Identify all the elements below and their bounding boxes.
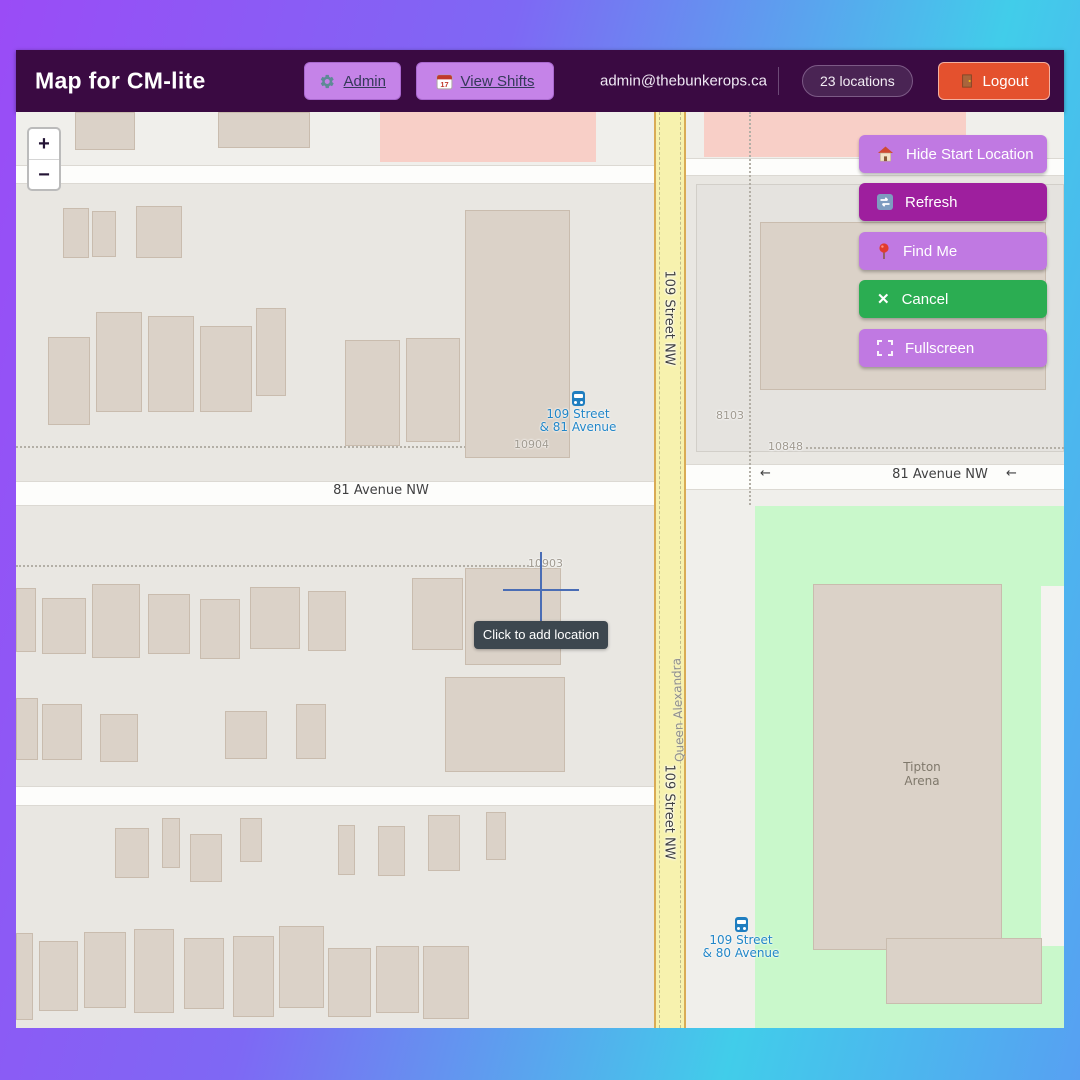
map-canvas[interactable]: 81 Avenue NW 81 Avenue NW ← ← 109 Street… xyxy=(16,112,1064,1028)
one-way-arrow: ← xyxy=(1006,466,1017,481)
map-building xyxy=(328,948,371,1017)
refresh-button[interactable]: Refresh xyxy=(859,183,1047,221)
view-shifts-button[interactable]: 17 View Shifts xyxy=(416,62,554,100)
map-building xyxy=(279,926,324,1008)
map-building xyxy=(406,338,460,442)
find-me-button[interactable]: Find Me xyxy=(859,232,1047,270)
map-building xyxy=(345,340,400,446)
refresh-icon xyxy=(877,194,893,210)
app-window: Map for CM-lite Admin 17 View Shifts adm… xyxy=(16,50,1064,1028)
logout-button-label: Logout xyxy=(983,73,1029,90)
gear-icon xyxy=(319,73,335,90)
bus-stop-label: 109 Street & 81 Avenue xyxy=(528,408,628,434)
map-building xyxy=(184,938,224,1009)
map-building xyxy=(256,308,286,396)
map-building xyxy=(84,932,126,1008)
bus-stop-label: 109 Street & 80 Avenue xyxy=(691,934,791,960)
map-building xyxy=(63,208,89,258)
admin-email: admin@thebunkerops.ca xyxy=(600,73,767,90)
logout-button[interactable]: Logout xyxy=(938,62,1050,100)
map-building xyxy=(465,568,561,665)
map-building xyxy=(48,337,90,425)
map-building xyxy=(136,206,182,258)
map-building xyxy=(233,936,274,1017)
map-building xyxy=(134,929,174,1013)
admin-button-label: Admin xyxy=(343,73,386,90)
app-header: Map for CM-lite Admin 17 View Shifts adm… xyxy=(16,50,1064,112)
zoom-out-button[interactable]: − xyxy=(29,159,59,189)
house-number: 10903 xyxy=(528,557,563,570)
map-building xyxy=(445,677,565,772)
hide-start-location-button[interactable]: Hide Start Location xyxy=(859,135,1047,173)
map-building xyxy=(148,316,194,412)
map-building xyxy=(92,584,140,658)
pin-icon xyxy=(877,243,891,260)
fullscreen-button[interactable]: Fullscreen xyxy=(859,329,1047,367)
zoom-in-button[interactable]: + xyxy=(29,129,59,159)
map-building xyxy=(162,818,180,868)
map-building xyxy=(75,112,135,150)
house-number: 8103 xyxy=(716,409,744,422)
calendar-icon: 17 xyxy=(436,73,453,90)
map-building xyxy=(39,941,78,1011)
bus-stop-icon xyxy=(735,917,748,932)
map-building xyxy=(190,834,222,882)
crosshair-cursor xyxy=(540,552,542,630)
map-building xyxy=(486,812,506,860)
map-building xyxy=(16,588,36,652)
house-number: 10848 xyxy=(768,440,803,453)
arena-label: Tipton Arena xyxy=(872,760,972,788)
street-label-109st-south: 109 Street NW xyxy=(662,764,677,859)
close-icon: ✕ xyxy=(877,290,890,308)
map-building xyxy=(250,587,300,649)
zoom-control: + − xyxy=(27,127,61,191)
door-icon xyxy=(960,73,974,89)
map-building xyxy=(92,211,116,257)
one-way-arrow: ← xyxy=(760,466,771,481)
street-label-81ave-west: 81 Avenue NW xyxy=(281,483,481,498)
map-building xyxy=(308,591,346,651)
map-building xyxy=(42,704,82,760)
map-building xyxy=(338,825,355,875)
map-building xyxy=(412,578,463,650)
map-building xyxy=(428,815,460,871)
header-divider xyxy=(778,67,779,95)
bus-stop-icon xyxy=(572,391,585,406)
map-building xyxy=(200,326,252,412)
admin-button[interactable]: Admin xyxy=(304,62,401,100)
locations-badge: 23 locations xyxy=(802,65,913,97)
page-background: Map for CM-lite Admin 17 View Shifts adm… xyxy=(0,0,1080,1080)
map-building xyxy=(886,938,1042,1004)
house-number: 10904 xyxy=(514,438,549,451)
fullscreen-icon xyxy=(877,340,893,356)
map-building xyxy=(376,946,419,1013)
map-building xyxy=(42,598,86,654)
house-icon xyxy=(877,146,894,162)
map-building xyxy=(148,594,190,654)
view-shifts-button-label: View Shifts xyxy=(461,73,535,90)
map-building xyxy=(378,826,405,876)
map-building xyxy=(100,714,138,762)
map-building xyxy=(225,711,267,759)
cancel-button[interactable]: ✕ Cancel xyxy=(859,280,1047,318)
map-building xyxy=(16,933,33,1020)
map-building xyxy=(240,818,262,862)
map-building xyxy=(218,112,310,148)
street-label-109st-north: 109 Street NW xyxy=(662,270,677,365)
map-building xyxy=(96,312,142,412)
app-title: Map for CM-lite xyxy=(35,68,206,95)
add-location-tooltip: Click to add location xyxy=(474,621,608,649)
map-building xyxy=(16,698,38,760)
svg-text:17: 17 xyxy=(440,79,448,88)
map-building xyxy=(200,599,240,659)
map-building xyxy=(296,704,326,759)
map-building xyxy=(423,946,469,1019)
map-building xyxy=(115,828,149,878)
